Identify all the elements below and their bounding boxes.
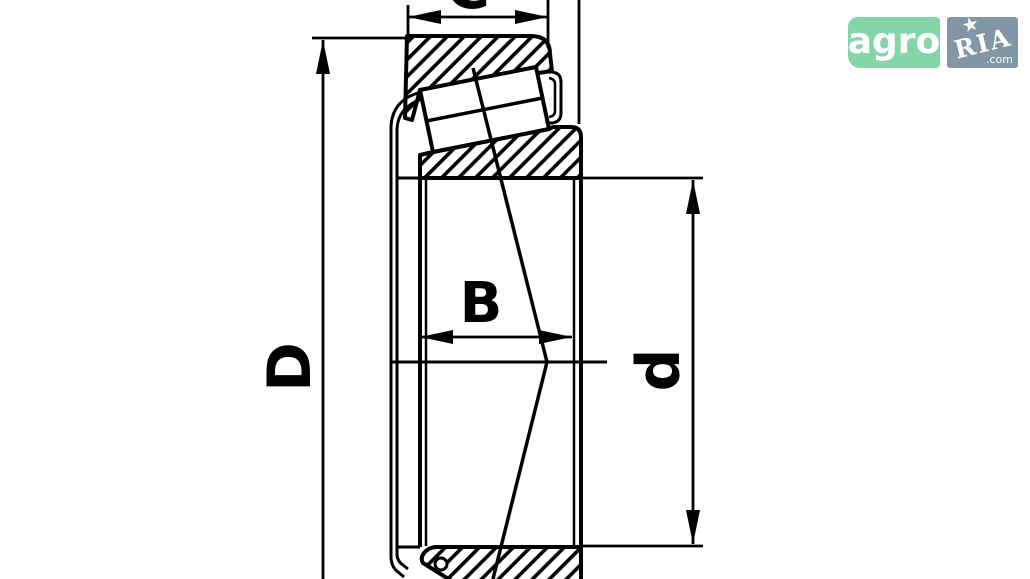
arrowhead-C-right — [515, 10, 548, 24]
bearing-drawing-page: C B D d agro ★ RIA .com — [0, 0, 1030, 579]
logo-com-text: .com — [986, 54, 1013, 65]
arrowhead-C-left — [408, 10, 441, 24]
arrowhead-d-up — [686, 180, 700, 214]
label-outer-diameter-D: D — [255, 342, 325, 392]
label-bore-diameter-d: d — [624, 349, 694, 392]
agroria-logo[interactable]: agro ★ RIA .com — [848, 15, 1020, 68]
arrowhead-D-up — [316, 40, 330, 74]
label-cone-width-B: B — [460, 271, 503, 336]
cage-left-outer-line — [391, 93, 418, 577]
logo-agro-text: agro — [848, 24, 941, 60]
label-cup-width-C: C — [446, 0, 490, 23]
cage-right-hook-inner — [549, 78, 555, 117]
bearing-cross-section-drawing: C B D d — [0, 0, 1030, 579]
cage-mirror-detail — [435, 558, 447, 570]
arrowhead-d-down — [686, 510, 700, 544]
arrowhead-B-right — [539, 330, 572, 344]
logo-agro-block[interactable]: agro — [848, 17, 940, 68]
logo-ria-block[interactable]: ★ RIA .com — [947, 17, 1018, 68]
